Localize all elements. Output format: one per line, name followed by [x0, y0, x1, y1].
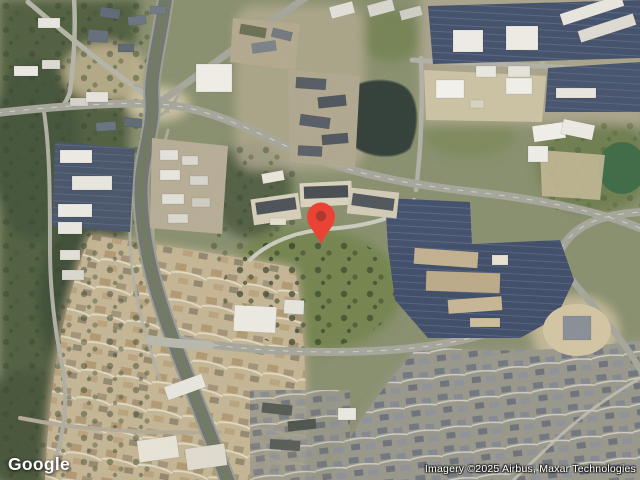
imagery-attribution: Imagery ©2025 Airbus, Maxar Technologies: [425, 463, 636, 476]
google-logo[interactable]: Google: [8, 456, 70, 474]
satellite-map[interactable]: Google Imagery ©2025 Airbus, Maxar Techn…: [0, 0, 640, 480]
